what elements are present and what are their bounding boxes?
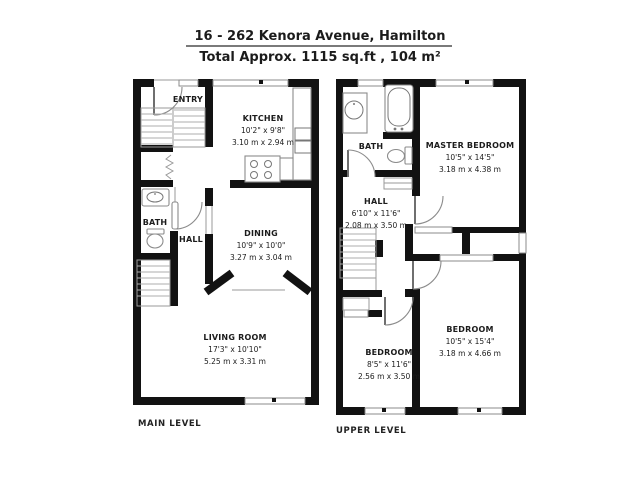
bifold-door-icon [166, 155, 173, 179]
tub-faucet-icon [394, 128, 397, 131]
bedroom2-door [385, 297, 413, 325]
dining-label: DINING [244, 229, 278, 238]
burner-icon [265, 172, 272, 179]
upper-bath-door [348, 150, 375, 177]
wall [375, 170, 412, 177]
closet-door [344, 310, 368, 317]
dining-dim-imperial: 10'9" x 10'0" [237, 241, 286, 250]
main-bath-door [172, 187, 202, 229]
upper-bath-fixtures [343, 85, 413, 164]
bedroom2-dim-metric: 2.56 m x 3.50 m [358, 372, 420, 381]
wall [502, 407, 526, 415]
wall [133, 180, 173, 187]
wall [205, 188, 213, 206]
kitchen-label: KITCHEN [243, 114, 284, 123]
living-room-label: LIVING ROOM [203, 333, 266, 342]
stove-fixture [245, 156, 280, 182]
window-tick [477, 408, 481, 412]
upper-hall-dim-imperial: 6'10" x 11'6" [352, 209, 401, 218]
chamfer-wall [285, 273, 310, 292]
bedroom3-door [413, 261, 441, 289]
upper-bath-label: BATH [359, 142, 384, 151]
wall [405, 289, 420, 297]
toilet-fixture [388, 150, 405, 163]
wall [462, 233, 470, 254]
wall [205, 234, 213, 284]
window [213, 80, 288, 86]
wall [368, 310, 382, 317]
staircase-up [141, 108, 205, 147]
master-bedroom-door [415, 196, 443, 224]
window [436, 80, 493, 86]
bedroom2-label: BEDROOM [365, 348, 412, 357]
wall [133, 79, 154, 87]
upper-hall-dim-metric: 2.08 m x 3.50 m [345, 221, 407, 230]
wall [198, 79, 213, 87]
door-arc [175, 202, 202, 229]
main-level-plan: ENTRY KITCHEN 10'2" x 9'8" 3.10 m x 2.94… [133, 79, 319, 429]
window-tick [382, 408, 386, 412]
door-arc [415, 196, 443, 224]
window-tick [272, 398, 276, 402]
burner-icon [251, 172, 258, 179]
wall [405, 254, 440, 261]
master-bedroom-label: MASTER BEDROOM [426, 141, 515, 150]
floorplan-page: 16 - 262 Kenora Avenue, Hamilton Total A… [0, 0, 640, 480]
wall [133, 79, 141, 405]
window [179, 80, 198, 86]
total-area-subtitle: Total Approx. 1115 sq.ft , 104 m² [199, 50, 440, 65]
wall [133, 145, 173, 152]
wall [305, 397, 319, 405]
bedroom3-label: BEDROOM [446, 325, 493, 334]
wall [336, 407, 365, 415]
wall [133, 397, 245, 405]
wall [170, 231, 178, 306]
tub-faucet-icon [401, 128, 404, 131]
stairs-outline [137, 260, 170, 306]
floorplan-drawing: 16 - 262 Kenora Avenue, Hamilton Total A… [0, 0, 640, 480]
wall [493, 254, 519, 261]
wall [311, 79, 319, 405]
wall [493, 79, 526, 87]
toilet-fixture [147, 234, 163, 248]
wall [288, 79, 319, 87]
door-arc [413, 261, 441, 289]
hall-label: HALL [179, 235, 203, 244]
window [519, 233, 526, 253]
toilet-tank-icon [147, 229, 164, 234]
bath-label: BATH [143, 218, 168, 227]
main-level-caption: MAIN LEVEL [138, 419, 201, 429]
burner-icon [251, 161, 258, 168]
upper-level-plan: BATH MASTER BEDROOM 10'5" x 14'5" 3.18 m… [336, 79, 526, 436]
upper-hall-label: HALL [364, 197, 388, 206]
wall [383, 132, 413, 139]
staircase-down [137, 260, 170, 306]
kitchen-dim-metric: 3.10 m x 2.94 m [232, 138, 294, 147]
toilet-tank-icon [405, 147, 412, 164]
closet-shelf [343, 298, 369, 310]
door-leaf [172, 202, 178, 229]
bedroom3-dim-imperial: 10'5" x 15'4" [446, 337, 495, 346]
kitchen-dim-imperial: 10'2" x 9'8" [241, 126, 285, 135]
wall [405, 407, 458, 415]
wall [452, 227, 519, 233]
wall [205, 87, 213, 147]
wall [412, 297, 420, 407]
master-bedroom-dim-imperial: 10'5" x 14'5" [446, 153, 495, 162]
door-arc [348, 150, 375, 177]
bedroom3-dim-metric: 3.18 m x 4.66 m [439, 349, 501, 358]
window [358, 80, 383, 86]
living-room-dim-metric: 5.25 m x 3.31 m [204, 357, 266, 366]
wall [336, 170, 348, 177]
counter [279, 158, 293, 180]
appliance-icon [295, 128, 311, 140]
burner-icon [265, 161, 272, 168]
bedroom2-dim-imperial: 8'5" x 11'6" [367, 360, 411, 369]
address-title: 16 - 262 Kenora Avenue, Hamilton [195, 29, 446, 44]
wall [133, 253, 173, 260]
living-room-dim-imperial: 17'3" x 10'10" [208, 345, 262, 354]
window-tick [465, 80, 469, 84]
master-bedroom-dim-metric: 3.18 m x 4.38 m [439, 165, 501, 174]
appliance-icon [295, 141, 311, 153]
entry-label: ENTRY [173, 95, 203, 104]
header: 16 - 262 Kenora Avenue, Hamilton Total A… [186, 29, 452, 65]
wall [336, 79, 358, 87]
upper-interior-walls [336, 87, 519, 407]
window-tick [259, 80, 263, 84]
faucet-icon [154, 193, 156, 195]
bathtub-basin-icon [388, 88, 410, 126]
dining-dim-metric: 3.27 m x 3.04 m [230, 253, 292, 262]
faucet-icon [353, 103, 355, 105]
upper-level-caption: UPPER LEVEL [336, 426, 406, 436]
door-arc [385, 297, 413, 325]
wall [336, 290, 382, 297]
closet-door [440, 255, 493, 261]
closet-door [415, 227, 452, 233]
upper-staircase [340, 228, 376, 290]
kitchen-fixtures [245, 88, 311, 182]
